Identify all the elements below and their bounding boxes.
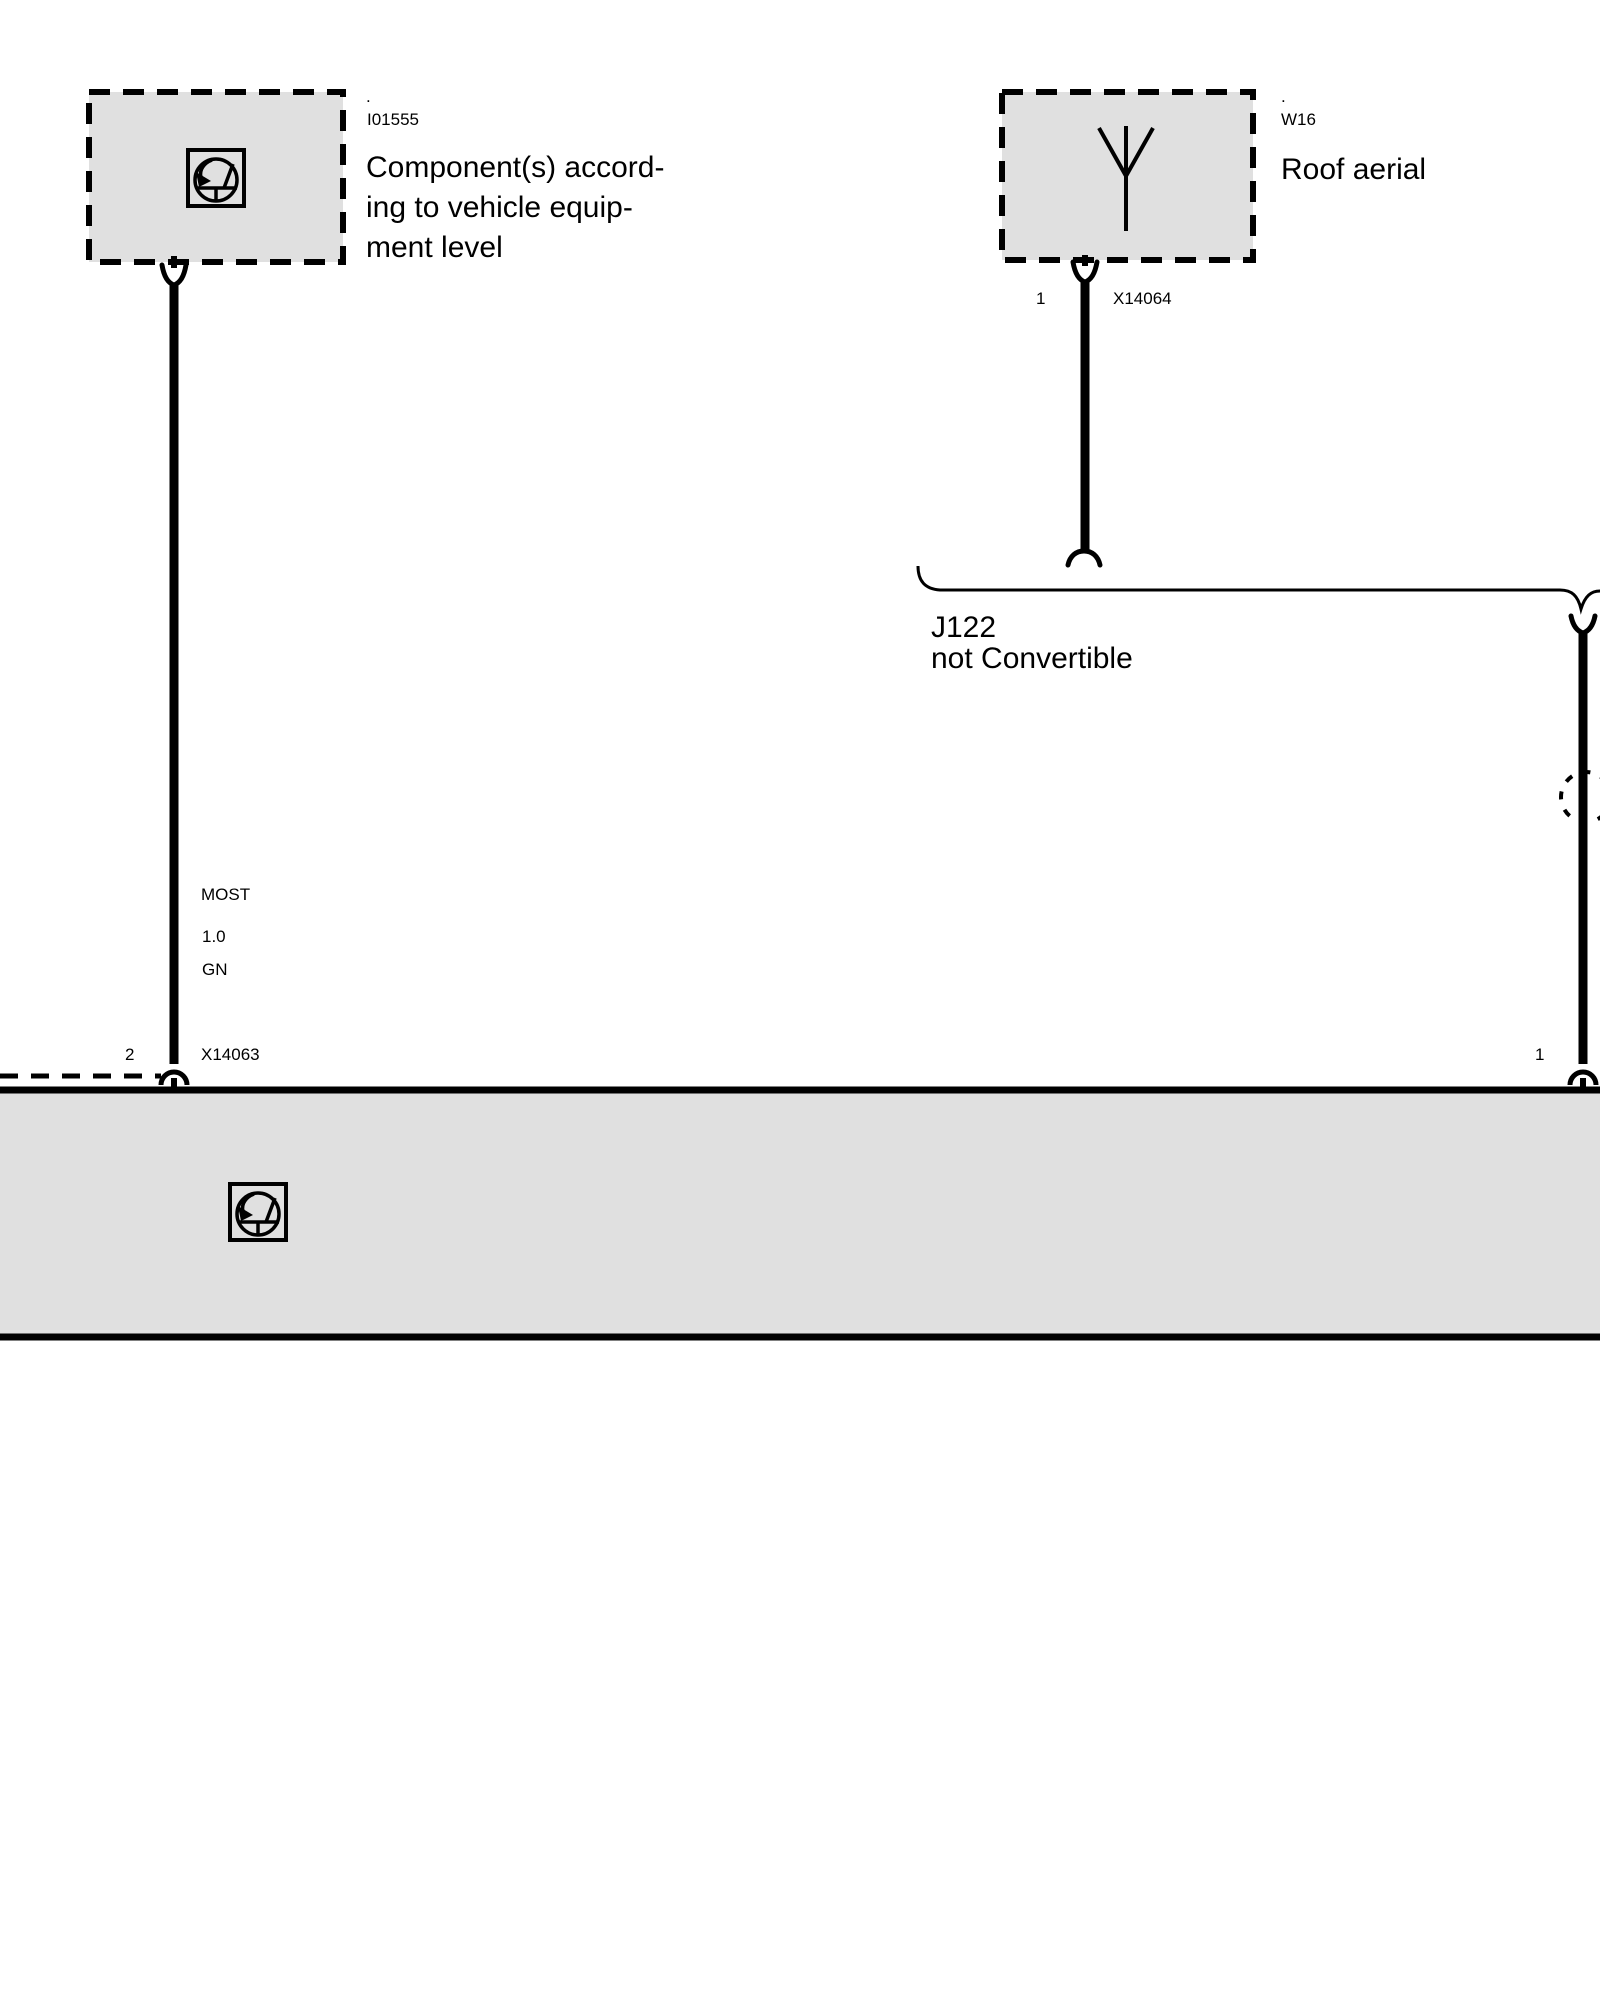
bracket-condition: not Convertible xyxy=(931,643,1133,674)
wiring-diagram-page: . I01555 Component(s) accord- ing to veh… xyxy=(0,0,1600,2000)
right-wire-top-connector-fork xyxy=(1571,616,1595,633)
bracket-code: J122 xyxy=(931,612,996,643)
roof-aerial-dot: . xyxy=(1281,88,1286,105)
wiring-diagram-graphics xyxy=(0,0,1600,2000)
variant-options-bracket xyxy=(918,566,1600,609)
most-wire-pin-number: 2 xyxy=(125,1046,134,1063)
right-wire-pin-number: 1 xyxy=(1535,1046,1544,1063)
aerial-wire-end-connector-fork xyxy=(1068,551,1100,565)
roof-aerial-label: Roof aerial xyxy=(1281,150,1426,190)
optional-component-label: Component(s) accord- ing to vehicle equi… xyxy=(366,148,664,268)
aerial-wire-pin-number: 1 xyxy=(1036,290,1045,307)
most-wire-cross-section: 1.0 xyxy=(202,928,226,945)
most-wire-connector-code: X14063 xyxy=(201,1046,260,1063)
optional-component-code: I01555 xyxy=(367,111,419,128)
optional-component-dot: . xyxy=(366,88,371,105)
aerial-wire-connector-code: X14064 xyxy=(1113,290,1172,307)
optional-component-box xyxy=(89,92,343,262)
most-wire-bus-label: MOST xyxy=(201,886,250,903)
roof-aerial-code: W16 xyxy=(1281,111,1316,128)
most-wire-color-code: GN xyxy=(202,961,228,978)
